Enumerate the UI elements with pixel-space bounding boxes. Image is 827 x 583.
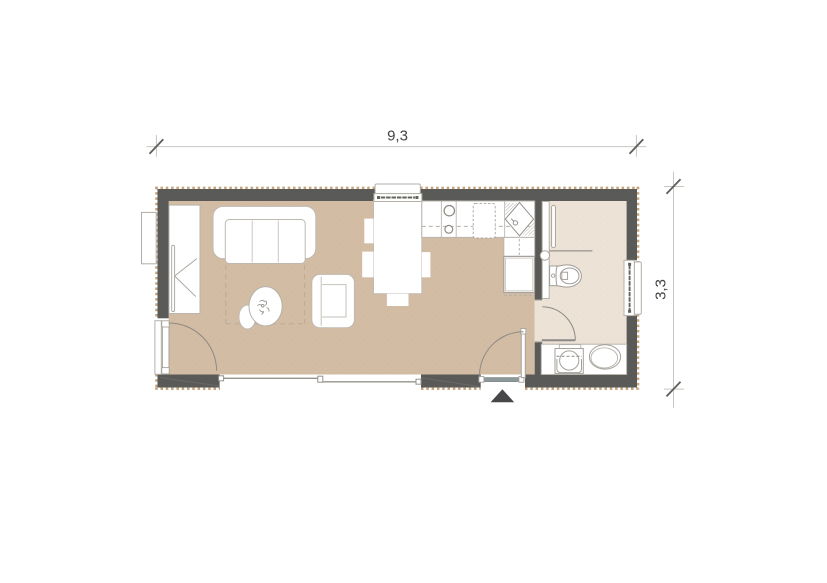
svg-text:9,3: 9,3 (387, 128, 408, 145)
svg-text:3,3: 3,3 (653, 279, 670, 300)
